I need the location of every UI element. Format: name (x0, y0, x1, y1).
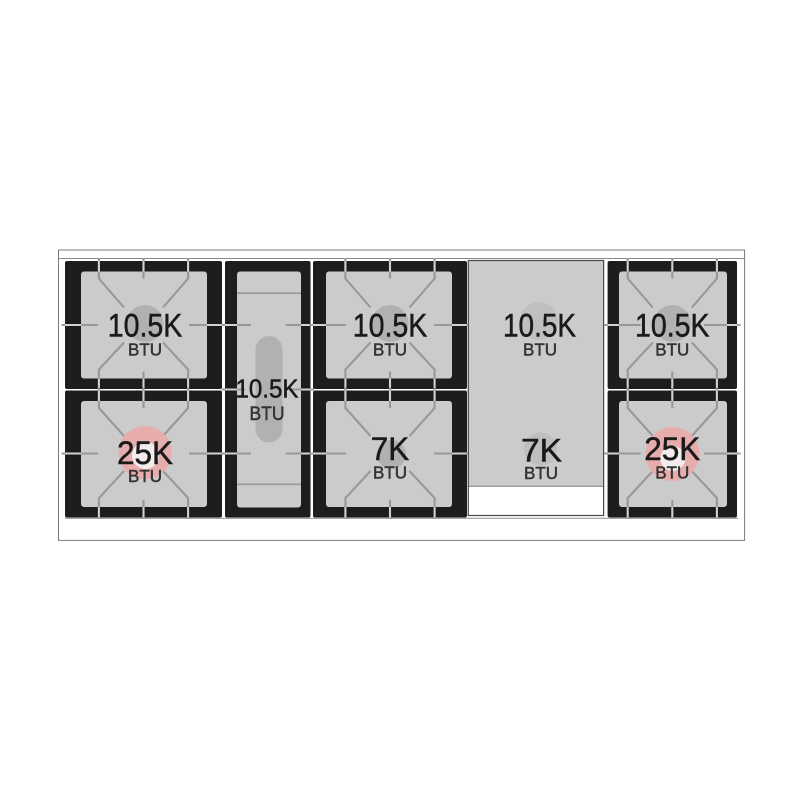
svg-text:BTU: BTU (250, 403, 285, 425)
svg-text:10.5K: 10.5K (236, 373, 300, 403)
svg-text:10.5K: 10.5K (108, 308, 183, 344)
svg-text:BTU: BTU (655, 462, 689, 482)
svg-text:10.5K: 10.5K (503, 308, 576, 344)
svg-text:10.5K: 10.5K (635, 308, 710, 344)
svg-text:BTU: BTU (523, 339, 557, 359)
svg-text:BTU: BTU (373, 339, 407, 359)
svg-text:BTU: BTU (128, 339, 162, 359)
svg-text:BTU: BTU (524, 463, 558, 483)
svg-text:10.5K: 10.5K (353, 308, 428, 344)
svg-text:BTU: BTU (373, 462, 407, 482)
svg-text:BTU: BTU (128, 466, 162, 486)
svg-text:BTU: BTU (655, 339, 689, 359)
